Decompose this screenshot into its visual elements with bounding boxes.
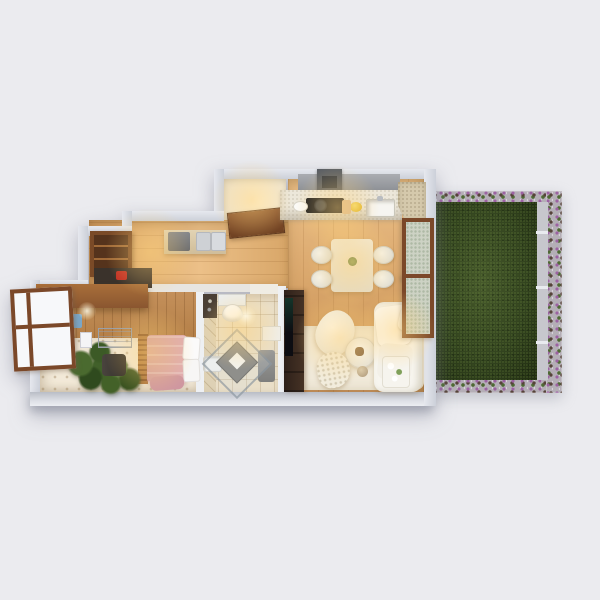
light-glow (200, 290, 280, 370)
light-glow (307, 217, 397, 307)
light-glow (105, 307, 195, 397)
ceiling-light-glows (0, 0, 600, 600)
light-glow (295, 293, 385, 383)
light-glow (295, 165, 380, 250)
mirror-light-glow (236, 306, 256, 326)
light-glow (212, 160, 292, 240)
light-glow (105, 207, 195, 297)
light-glow (356, 290, 436, 370)
render-canvas (0, 0, 600, 600)
wall-lamp-glow (78, 302, 96, 320)
